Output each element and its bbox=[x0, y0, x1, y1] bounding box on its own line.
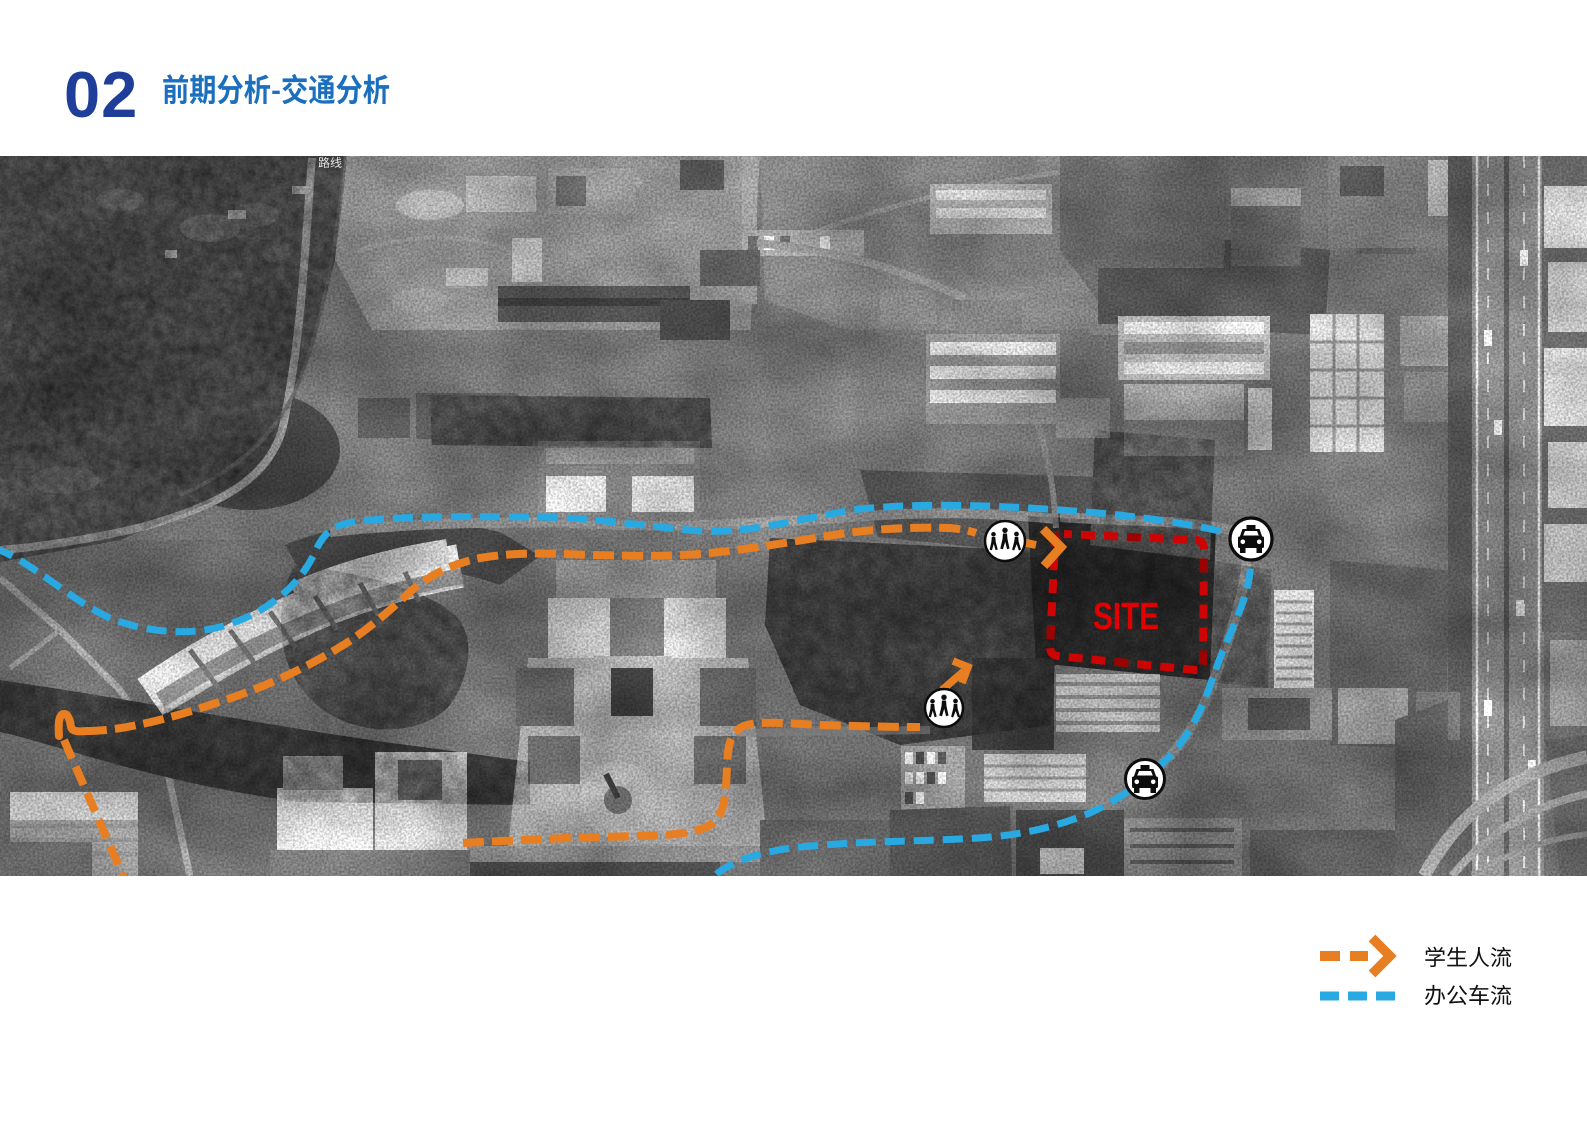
svg-text:SITE: SITE bbox=[1093, 596, 1159, 638]
